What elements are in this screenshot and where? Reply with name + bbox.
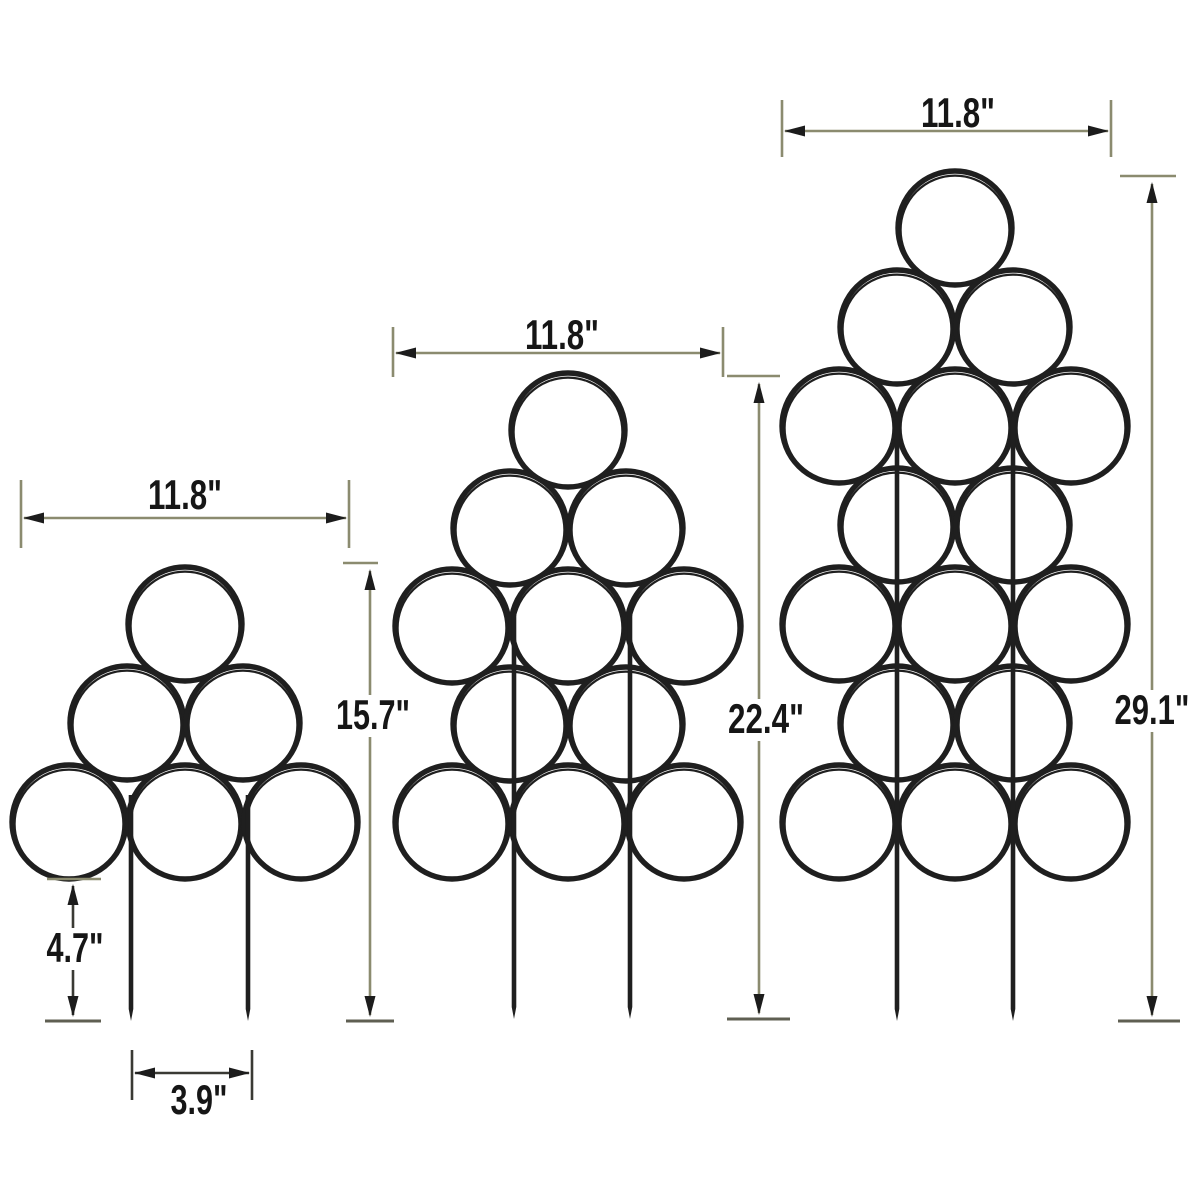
- trellis-ring-inner: [73, 671, 182, 780]
- trellis-ring-inner: [901, 176, 1010, 285]
- trellis-ring-inner: [785, 572, 894, 681]
- trellis-ring-inner: [15, 770, 124, 879]
- small-trellis: 11.8"15.7"4.7"3.9": [12, 471, 416, 1123]
- trellis-ring-inner: [514, 770, 623, 879]
- trellis-ring-inner: [785, 770, 894, 879]
- trellis-ring-inner: [456, 672, 565, 781]
- ground-stake-tip: [628, 1007, 633, 1019]
- ground-stake-tip: [895, 1009, 900, 1021]
- arrowhead-left-icon: [784, 126, 805, 137]
- arrowhead-right-icon: [700, 348, 721, 359]
- trellis-ring-inner: [901, 572, 1010, 681]
- dimension-label: 11.8": [148, 471, 222, 518]
- stake-gap-dimension: 3.9": [132, 1050, 252, 1123]
- height-dimension: 22.4": [722, 376, 810, 1019]
- trellis-ring-inner: [131, 572, 240, 681]
- trellis-ring-inner: [247, 770, 356, 879]
- trellis-ring-inner: [959, 275, 1068, 384]
- arrowhead-up-icon: [1147, 182, 1158, 203]
- trellis-ring-inner: [514, 574, 623, 683]
- ground-stake-tip: [1011, 1009, 1016, 1021]
- trellis-ring-inner: [456, 476, 565, 585]
- trellis-ring-inner: [1017, 374, 1126, 483]
- trellis-ring-inner: [514, 378, 623, 487]
- arrowhead-down-icon: [754, 994, 765, 1015]
- ground-stake-tip: [129, 1009, 134, 1021]
- dimension-label: 11.8": [525, 311, 599, 358]
- arrowhead-right-icon: [1088, 126, 1109, 137]
- arrowhead-right-icon: [229, 1068, 250, 1079]
- medium-trellis: 11.8"22.4": [393, 311, 810, 1019]
- arrowhead-left-icon: [395, 348, 416, 359]
- width-dimension: 11.8": [21, 471, 349, 548]
- dimension-label: 29.1": [1115, 686, 1190, 733]
- stake-depth-dimension: 4.7": [41, 879, 110, 1021]
- arrowhead-left-icon: [23, 513, 44, 524]
- arrowhead-down-icon: [68, 996, 79, 1017]
- ground-stake-tip: [246, 1009, 251, 1021]
- arrowhead-up-icon: [68, 884, 79, 905]
- trellis-ring-inner: [901, 770, 1010, 879]
- trellis-ring-inner: [572, 476, 681, 585]
- arrowhead-right-icon: [326, 513, 347, 524]
- trellis-ring-inner: [398, 574, 507, 683]
- trellis-ring-inner: [901, 374, 1010, 483]
- arrowhead-up-icon: [365, 569, 376, 590]
- trellis-ring-inner: [572, 672, 681, 781]
- trellis-ring-inner: [843, 275, 952, 384]
- trellis-ring-inner: [189, 671, 298, 780]
- arrowhead-down-icon: [365, 996, 376, 1017]
- width-dimension: 11.8": [393, 311, 723, 377]
- width-dimension: 11.8": [782, 89, 1111, 157]
- trellis-ring-inner: [630, 770, 739, 879]
- dimension-label: 22.4": [728, 695, 804, 742]
- product-dimension-diagram: 11.8"15.7"4.7"3.9"11.8"22.4"11.8"29.1": [0, 0, 1200, 1200]
- trellis-ring-inner: [1017, 770, 1126, 879]
- diagram-canvas: 11.8"15.7"4.7"3.9"11.8"22.4"11.8"29.1": [0, 0, 1200, 1200]
- dimension-label: 15.7": [336, 691, 410, 738]
- arrowhead-up-icon: [754, 382, 765, 403]
- dimension-label: 3.9": [171, 1076, 228, 1123]
- trellis-ring-inner: [630, 574, 739, 683]
- large-trellis: 11.8"29.1": [782, 89, 1196, 1021]
- trellis-ring-inner: [131, 770, 240, 879]
- dimension-label: 4.7": [47, 924, 104, 971]
- ground-stake-tip: [512, 1007, 517, 1019]
- trellis-ring-inner: [785, 374, 894, 483]
- trellis-ring-inner: [398, 770, 507, 879]
- trellis-ring-inner: [1017, 572, 1126, 681]
- dimension-label: 11.8": [921, 89, 995, 136]
- arrowhead-left-icon: [134, 1068, 155, 1079]
- arrowhead-down-icon: [1147, 996, 1158, 1017]
